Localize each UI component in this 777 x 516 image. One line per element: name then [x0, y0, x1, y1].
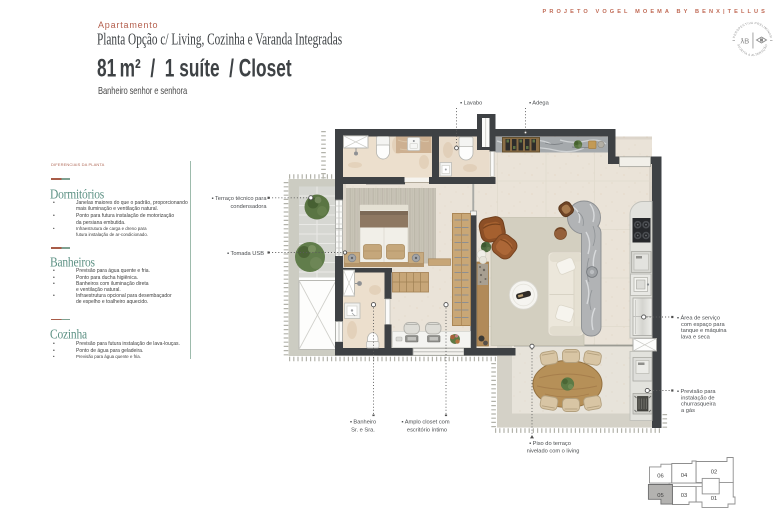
svg-text:instalação de: instalação de: [681, 395, 715, 401]
svg-text:lava e seca: lava e seca: [681, 334, 711, 340]
svg-text:▪ Previsão para: ▪ Previsão para: [677, 389, 717, 395]
svg-text:churrasqueira: churrasqueira: [681, 402, 717, 408]
svg-text:05: 05: [657, 493, 663, 499]
svg-text:▪ Área de serviço: ▪ Área de serviço: [677, 315, 720, 322]
svg-text:▪ Tomada USB: ▪ Tomada USB: [227, 251, 264, 257]
svg-text:▪ Lavabo: ▪ Lavabo: [460, 101, 482, 107]
svg-text:a gás: a gás: [681, 408, 695, 414]
svg-text:com espaço para: com espaço para: [681, 322, 725, 328]
svg-text:Sr. e Sra.: Sr. e Sra.: [351, 427, 375, 433]
svg-text:tanque e máquina: tanque e máquina: [681, 328, 727, 334]
svg-text:▪ Amplo closet com: ▪ Amplo closet com: [401, 420, 449, 426]
svg-text:nivelado com o living: nivelado com o living: [527, 449, 580, 455]
svg-text:01: 01: [711, 496, 717, 502]
svg-text:▪ Terraço técnico para: ▪ Terraço técnico para: [211, 196, 267, 202]
svg-text:02: 02: [711, 470, 717, 476]
svg-text:06: 06: [657, 474, 663, 480]
svg-text:▪ Adega: ▪ Adega: [529, 101, 550, 107]
svg-text:▪ Piso do terraço: ▪ Piso do terraço: [529, 441, 571, 447]
svg-text:▪ Banheiro: ▪ Banheiro: [350, 420, 376, 426]
svg-text:condensadora: condensadora: [230, 204, 267, 210]
svg-text:escritório íntimo: escritório íntimo: [407, 427, 447, 433]
svg-text:03: 03: [681, 493, 687, 499]
svg-text:04: 04: [681, 473, 688, 479]
